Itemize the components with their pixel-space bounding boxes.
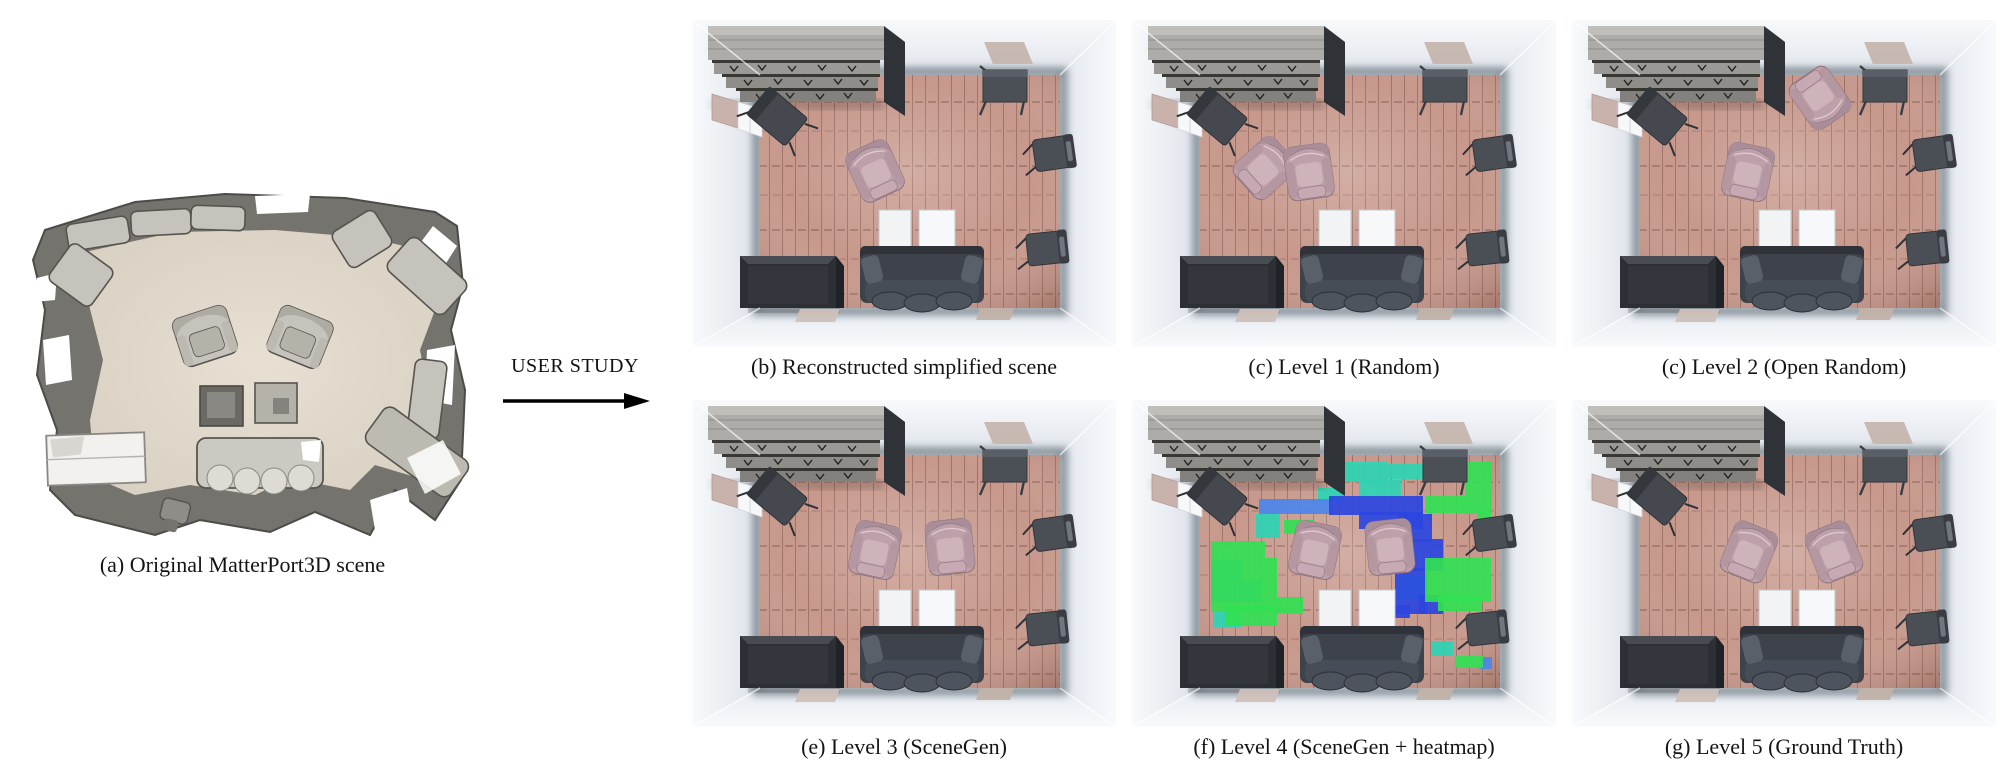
panel-level4-heatmap: (f) Level 4 (SceneGen + heatmap) [1132,400,1556,760]
panel-level2-open-random: (c) Level 2 (Open Random) [1572,20,1996,380]
room-image-level4 [1132,400,1556,727]
panel-caption: (b) Reconstructed simplified scene [692,354,1116,380]
room-image-reconstructed [692,20,1116,347]
panel-level1-random: (c) Level 1 (Random) [1132,20,1556,380]
panel-caption: (e) Level 3 (SceneGen) [692,734,1116,760]
room-image-level1 [1132,20,1556,347]
panel-level5-ground-truth: (g) Level 5 (Ground Truth) [1572,400,1996,760]
paper-figure: (a) Original MatterPort3D scene USER STU… [0,0,2007,766]
user-study-arrow: USER STUDY [500,355,650,415]
panel-caption: (g) Level 5 (Ground Truth) [1572,734,1996,760]
panel-level3-scenegen: (e) Level 3 (SceneGen) [692,400,1116,760]
scan-figure [15,190,475,545]
scan-caption: (a) Original MatterPort3D scene [10,552,475,578]
panel-caption: (f) Level 4 (SceneGen + heatmap) [1132,734,1556,760]
panel-reconstructed: (b) Reconstructed simplified scene [692,20,1116,380]
panel-caption: (c) Level 2 (Open Random) [1572,354,1996,380]
room-image-level3 [692,400,1116,727]
arrow-label: USER STUDY [500,355,650,378]
panel-caption: (c) Level 1 (Random) [1132,354,1556,380]
room-image-level2 [1572,20,1996,347]
room-image-level5 [1572,400,1996,727]
right-arrow-icon [500,392,650,410]
matterport-scan-image [15,190,475,545]
